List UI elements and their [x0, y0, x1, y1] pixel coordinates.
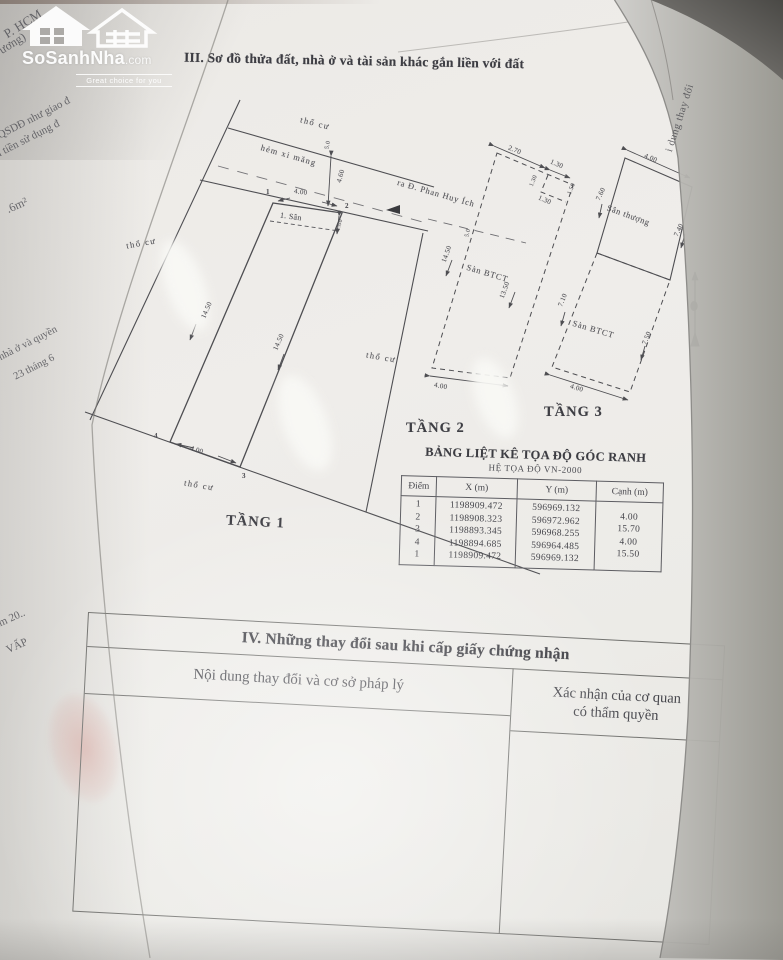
logo-tagline: Great choice for you	[76, 74, 172, 87]
sosanhnha-watermark-logo: SoSanhNha.com Great choice for you	[14, 4, 184, 119]
logo-houses-icon	[14, 4, 184, 48]
curl-shadow-area	[612, 0, 783, 960]
logo-brand-text: SoSanhNha.com	[22, 48, 152, 69]
scanned-land-certificate-page: P. HCM ương) QSDĐ như giao đ u tiền sử d…	[0, 0, 783, 960]
bottom-shadow-band	[0, 918, 783, 960]
